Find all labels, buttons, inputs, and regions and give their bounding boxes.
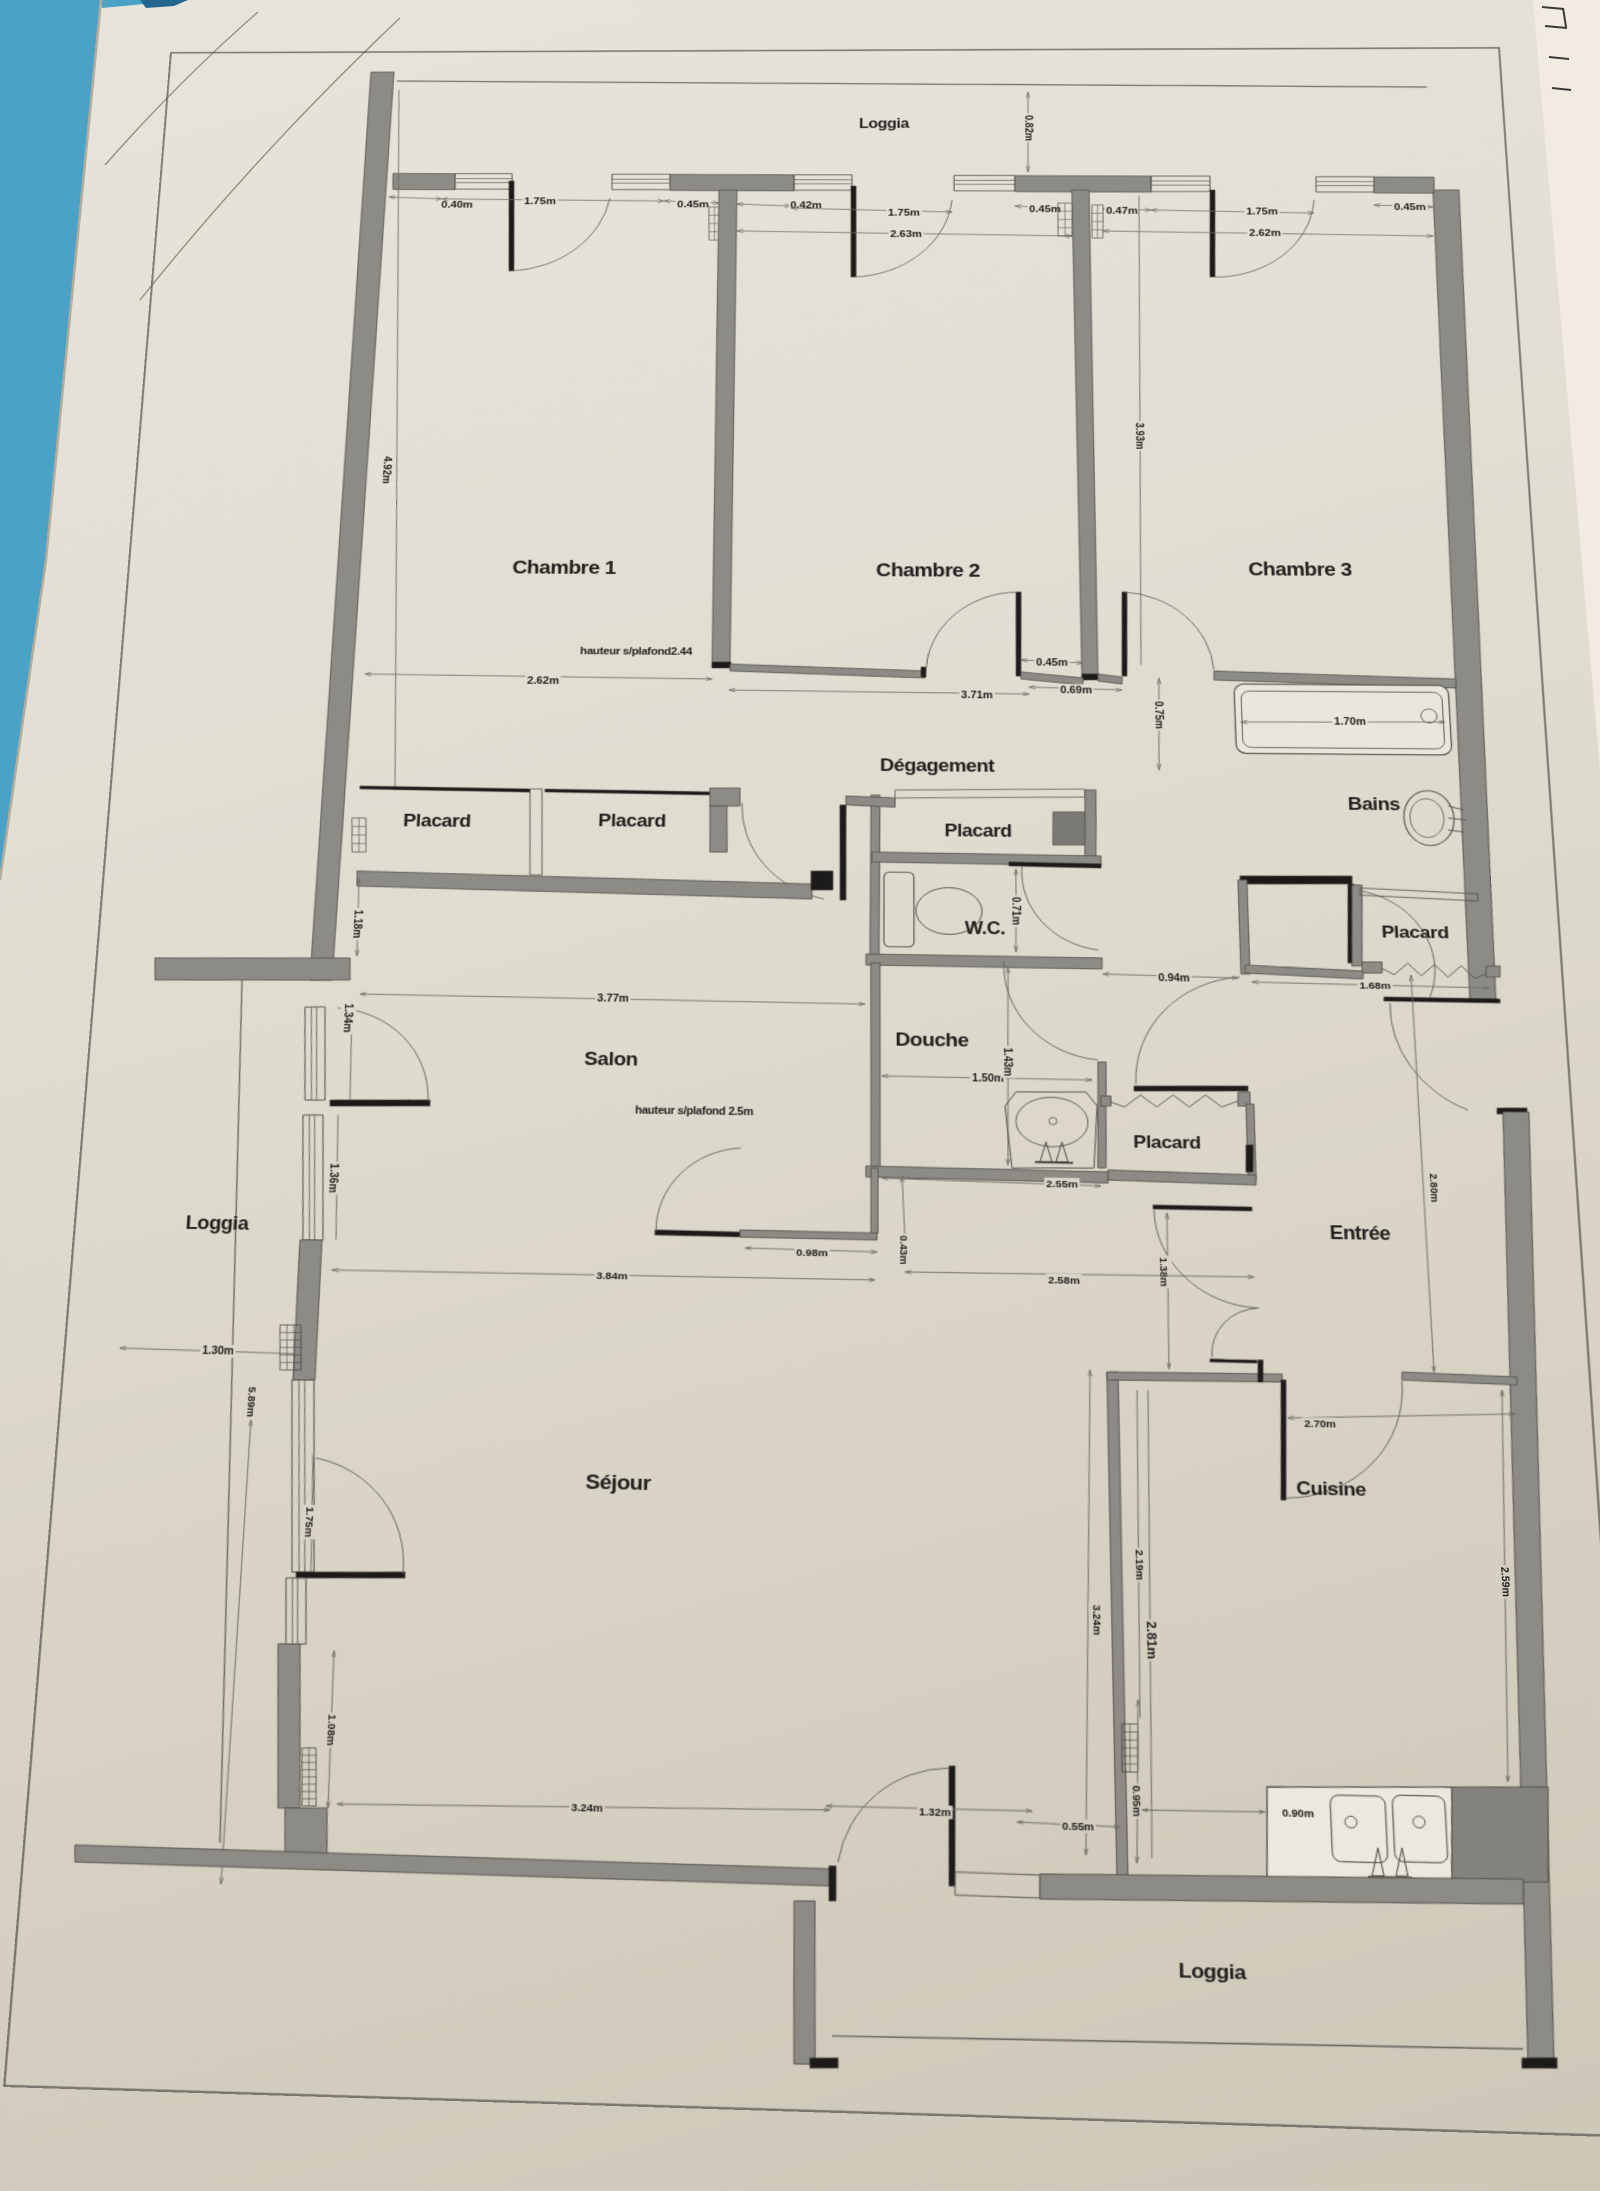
- svg-text:0.90m: 0.90m: [1282, 1808, 1314, 1821]
- svg-text:2.19m: 2.19m: [1133, 1550, 1147, 1581]
- svg-text:Loggia: Loggia: [859, 117, 909, 132]
- svg-text:0.45m: 0.45m: [677, 200, 709, 210]
- svg-text:Dégagement: Dégagement: [880, 756, 996, 776]
- svg-text:1.75m: 1.75m: [302, 1506, 317, 1537]
- svg-text:1.75m: 1.75m: [1246, 207, 1278, 218]
- svg-text:2.70m: 2.70m: [1304, 1418, 1337, 1431]
- svg-text:3.24m: 3.24m: [571, 1800, 603, 1814]
- svg-text:3.84m: 3.84m: [596, 1270, 628, 1282]
- svg-text:2.62m: 2.62m: [527, 675, 559, 687]
- svg-text:Placard: Placard: [1133, 1133, 1201, 1154]
- svg-text:0.94m: 0.94m: [1158, 972, 1190, 984]
- svg-text:4.92m: 4.92m: [379, 456, 393, 484]
- svg-text:0.71m: 0.71m: [1010, 897, 1023, 925]
- svg-text:1.43m: 1.43m: [1002, 1047, 1015, 1076]
- svg-text:1.30m: 1.30m: [202, 1345, 235, 1358]
- svg-text:3.93m: 3.93m: [1132, 423, 1146, 450]
- svg-text:0.42m: 0.42m: [790, 201, 822, 211]
- svg-text:0.45m: 0.45m: [1036, 658, 1068, 669]
- svg-text:Salon: Salon: [584, 1048, 638, 1070]
- svg-text:Séjour: Séjour: [585, 1470, 652, 1495]
- svg-text:0.98m: 0.98m: [796, 1246, 828, 1258]
- svg-text:Loggia: Loggia: [1178, 1960, 1247, 1985]
- svg-text:2.59m: 2.59m: [1498, 1567, 1513, 1597]
- svg-text:1.38m: 1.38m: [1157, 1257, 1171, 1287]
- svg-text:0.47m: 0.47m: [1106, 206, 1138, 217]
- svg-text:Placard: Placard: [1381, 923, 1449, 943]
- svg-text:2.62m: 2.62m: [1249, 229, 1281, 240]
- svg-text:1.68m: 1.68m: [1359, 979, 1391, 991]
- svg-text:hauteur s/plafond2.44: hauteur s/plafond2.44: [580, 646, 693, 658]
- svg-text:0.40m: 0.40m: [441, 200, 473, 210]
- svg-text:Entrée: Entrée: [1329, 1223, 1391, 1244]
- svg-text:0.45m: 0.45m: [1394, 203, 1426, 214]
- svg-text:W.C.: W.C.: [965, 919, 1006, 938]
- svg-text:0.69m: 0.69m: [1060, 685, 1092, 696]
- svg-text:1.32m: 1.32m: [919, 1805, 951, 1819]
- svg-text:2.63m: 2.63m: [890, 230, 922, 241]
- svg-text:Bains: Bains: [1347, 795, 1401, 815]
- svg-text:0.45m: 0.45m: [1029, 205, 1061, 216]
- svg-text:Douche: Douche: [895, 1029, 969, 1051]
- svg-text:2.81m: 2.81m: [1142, 1621, 1158, 1659]
- svg-text:0.43m: 0.43m: [898, 1235, 911, 1265]
- svg-text:0.95m: 0.95m: [1130, 1785, 1144, 1817]
- svg-text:1.08m: 1.08m: [325, 1714, 340, 1746]
- svg-text:1.18m: 1.18m: [351, 910, 365, 939]
- svg-text:5.89m: 5.89m: [245, 1387, 260, 1418]
- svg-text:3.24m: 3.24m: [1090, 1605, 1104, 1636]
- svg-text:1.75m: 1.75m: [888, 208, 920, 218]
- svg-text:Placard: Placard: [598, 811, 666, 831]
- svg-text:hauteur s/plafond 2.5m: hauteur s/plafond 2.5m: [635, 1104, 754, 1117]
- svg-text:Chambre 2: Chambre 2: [876, 559, 981, 580]
- svg-text:Chambre 1: Chambre 1: [512, 558, 617, 579]
- svg-text:1.34m: 1.34m: [341, 1003, 355, 1032]
- svg-text:1.50m: 1.50m: [972, 1072, 1004, 1084]
- svg-text:2.58m: 2.58m: [1048, 1274, 1080, 1286]
- svg-text:0.55m: 0.55m: [1062, 1819, 1094, 1833]
- svg-text:Cuisine: Cuisine: [1296, 1478, 1368, 1501]
- svg-text:1.75m: 1.75m: [524, 197, 556, 207]
- svg-text:Placard: Placard: [403, 811, 471, 831]
- svg-text:0.75m: 0.75m: [1153, 701, 1166, 729]
- svg-text:3.71m: 3.71m: [961, 690, 993, 701]
- svg-text:2.55m: 2.55m: [1046, 1178, 1078, 1190]
- svg-text:Chambre 3: Chambre 3: [1248, 558, 1353, 579]
- svg-text:1.36m: 1.36m: [327, 1163, 341, 1193]
- svg-text:3.77m: 3.77m: [597, 992, 629, 1004]
- svg-text:1.70m: 1.70m: [1334, 717, 1366, 728]
- svg-text:Placard: Placard: [944, 822, 1011, 841]
- svg-text:0.82m: 0.82m: [1022, 115, 1035, 141]
- svg-text:2.80m: 2.80m: [1427, 1173, 1441, 1202]
- svg-text:Loggia: Loggia: [185, 1213, 251, 1235]
